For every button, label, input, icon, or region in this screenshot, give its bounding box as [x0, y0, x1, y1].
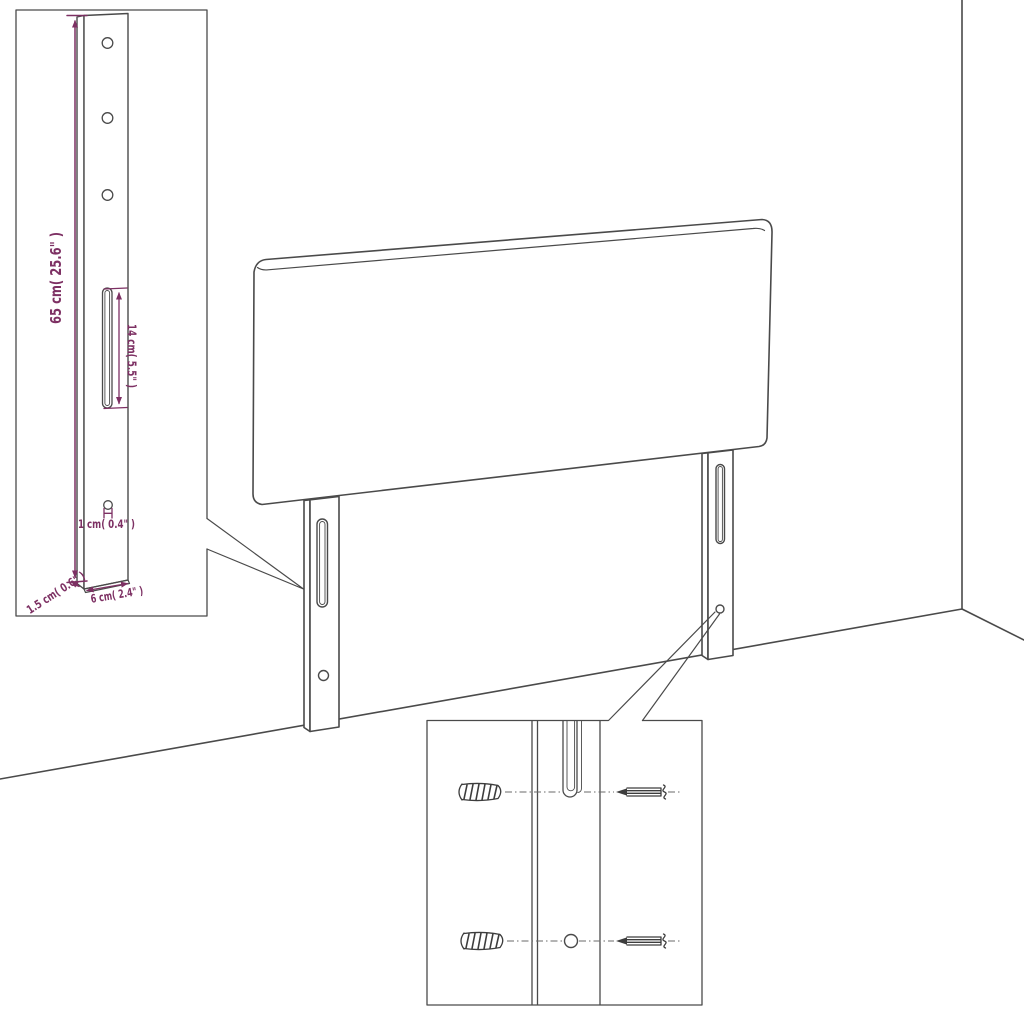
headboard-dimension-diagram: 65 cm( 25.6" ) 14 cm( 5.5" ) 1 cm( 0.4" … — [0, 0, 1024, 1024]
floor-line-right — [962, 609, 1024, 640]
hole-diameter-label: 1 cm( 0.4" ) — [78, 517, 135, 531]
hardware-box-border — [427, 721, 702, 1006]
wall-plug-icon — [459, 783, 501, 800]
inset-leg-side-face — [77, 16, 84, 590]
headboard-outline — [253, 220, 772, 505]
headboard-panel — [253, 220, 772, 505]
hardware-detail-inset — [427, 721, 702, 1006]
slot-length-label: 14 cm( 5.5" ) — [125, 324, 139, 388]
inset-leg-bar — [77, 14, 130, 593]
dimension-leg-thickness: 1.5 cm( 0.6" ) — [24, 569, 88, 617]
hardware-row-slot — [459, 783, 680, 800]
hardware-leg-strip — [532, 721, 600, 1005]
diagram-canvas: 65 cm( 25.6" ) 14 cm( 5.5" ) 1 cm( 0.4" … — [0, 0, 1024, 1024]
left-leg — [304, 496, 339, 731]
leg-strip-hole — [565, 935, 578, 948]
floor-line-left — [0, 609, 962, 779]
right-leg-side-face — [702, 453, 708, 660]
left-leg-side-face — [304, 500, 310, 732]
right-leg-hole — [716, 605, 724, 613]
leg-thickness-label: 1.5 cm( 0.6" ) — [24, 569, 88, 617]
leg-strip-edges — [532, 721, 600, 1005]
right-leg-front-face — [708, 450, 733, 660]
leg-height-label: 65 cm( 25.6" ) — [47, 232, 65, 324]
wall-plug-icon — [461, 932, 503, 949]
right-leg — [702, 450, 733, 660]
screw-icon — [616, 785, 680, 799]
callout-left-leg — [207, 519, 304, 590]
inset-leg-front-face — [84, 14, 128, 590]
left-leg-front-face — [310, 496, 339, 731]
leg-detail-inset: 65 cm( 25.6" ) 14 cm( 5.5" ) 1 cm( 0.4" … — [16, 10, 207, 617]
screw-icon — [616, 934, 680, 948]
